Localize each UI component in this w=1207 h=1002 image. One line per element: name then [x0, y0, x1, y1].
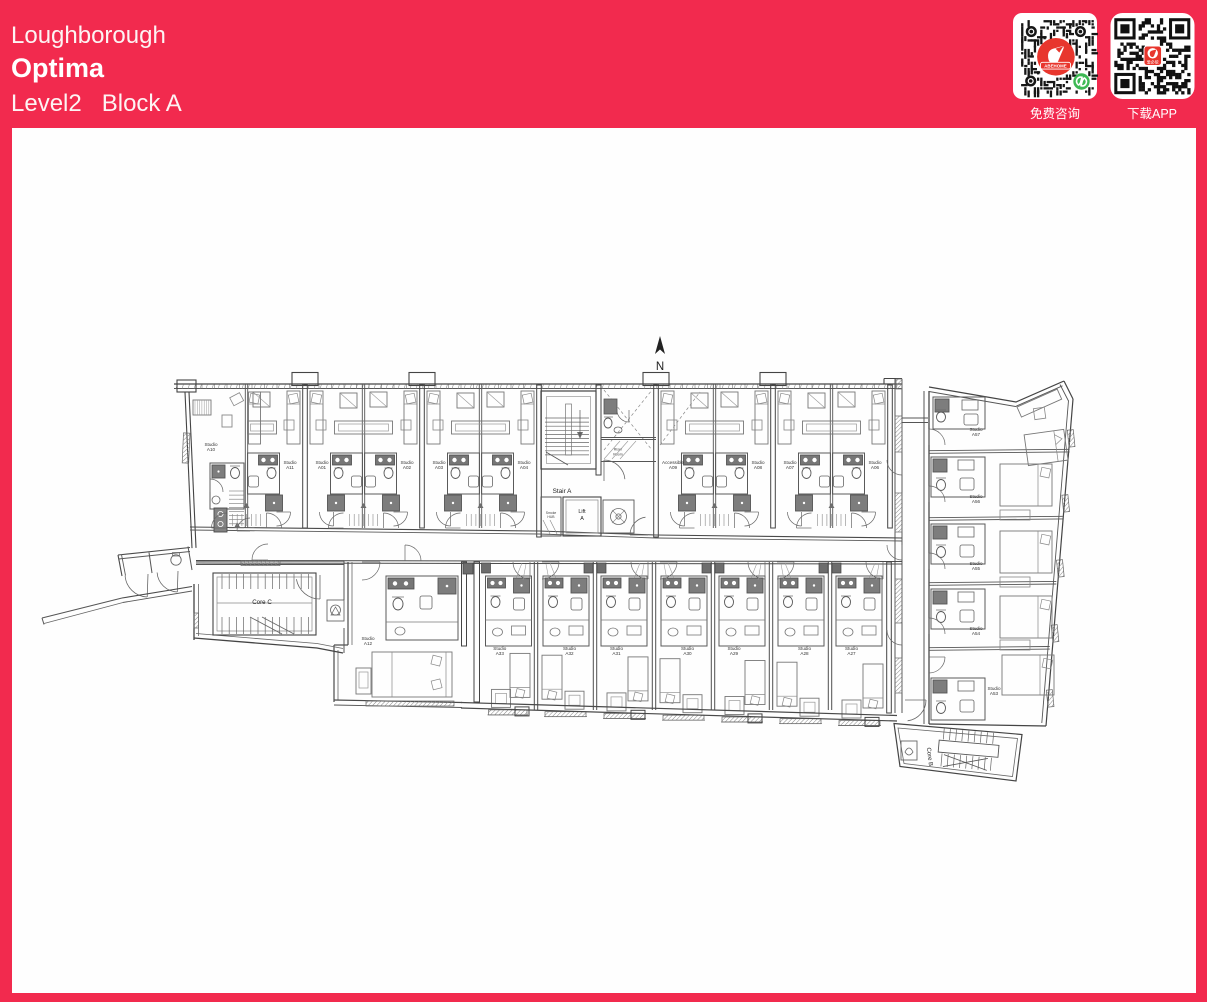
svg-text:A02: A02 [403, 465, 412, 470]
svg-text:Core C: Core C [252, 599, 272, 606]
svg-text:A56: A56 [972, 499, 981, 504]
svg-text:A29: A29 [730, 651, 739, 656]
svg-text:A07: A07 [786, 465, 795, 470]
svg-text:A31: A31 [612, 651, 621, 656]
svg-text:A30: A30 [683, 651, 692, 656]
svg-text:A: A [580, 516, 584, 522]
svg-text:A57: A57 [972, 432, 981, 437]
svg-text:N: N [656, 361, 664, 373]
svg-text:A04: A04 [520, 465, 529, 470]
svg-text:Lift: Lift [578, 509, 586, 515]
svg-text:ABEHOME: ABEHOME [1044, 64, 1067, 69]
svg-text:A06: A06 [871, 465, 880, 470]
svg-text:Stair A: Stair A [553, 488, 573, 495]
svg-text:Core B: Core B [925, 747, 933, 766]
svg-text:A08: A08 [754, 465, 763, 470]
svg-text:A10: A10 [207, 447, 216, 452]
svg-text:A33: A33 [496, 651, 505, 656]
svg-text:A54: A54 [972, 631, 981, 636]
svg-text:A28: A28 [800, 651, 809, 656]
svg-text:HUB: HUB [547, 515, 555, 519]
svg-text:A11: A11 [286, 465, 294, 470]
svg-text:爱必侬: 爱必侬 [1147, 59, 1159, 65]
svg-text:A55: A55 [972, 566, 981, 571]
svg-text:A01: A01 [318, 465, 327, 470]
svg-text:A32: A32 [565, 651, 574, 656]
svg-text:A12: A12 [364, 641, 373, 646]
svg-text:A03: A03 [435, 465, 444, 470]
svg-text:A27: A27 [847, 651, 856, 656]
svg-text:A53: A53 [990, 691, 999, 696]
svg-text:A09: A09 [669, 465, 678, 470]
